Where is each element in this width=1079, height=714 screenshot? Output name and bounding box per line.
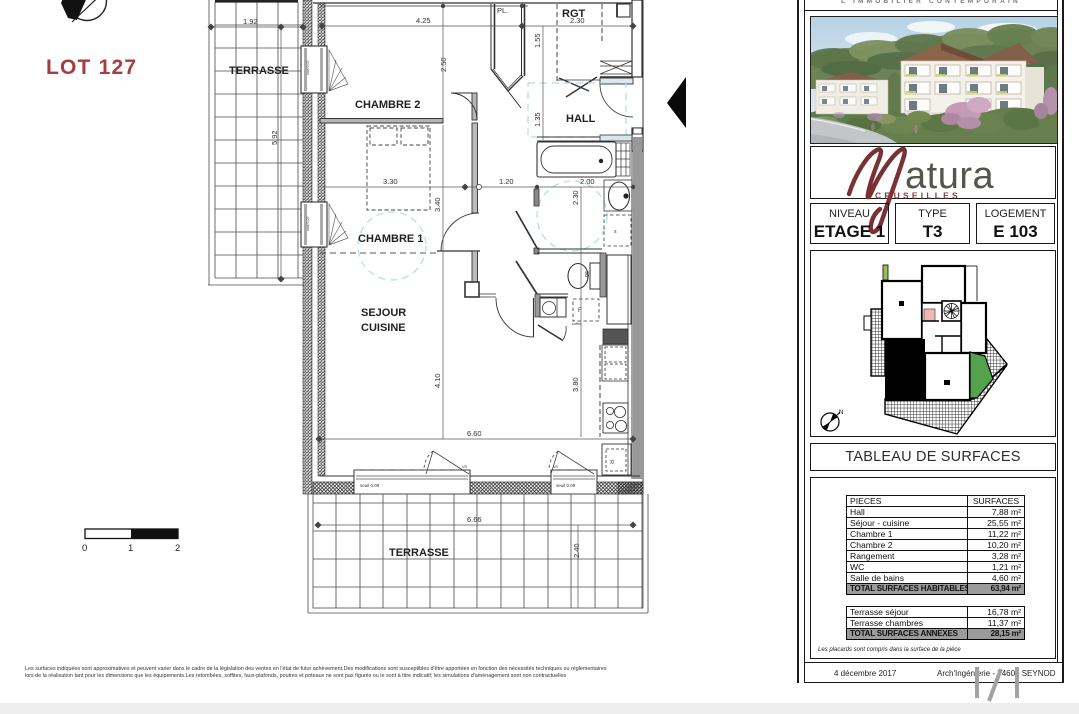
svg-text:1.20: 1.20 (499, 177, 514, 186)
svg-text:SEJOUR: SEJOUR (361, 307, 406, 319)
svg-text:4.25: 4.25 (416, 16, 431, 25)
svg-text:seuil 0.09: seuil 0.09 (556, 483, 576, 488)
svg-text:VR: VR (462, 465, 468, 469)
svg-text:CRUSEILLES: CRUSEILLES (875, 191, 961, 201)
svg-text:2.30: 2.30 (571, 190, 580, 205)
svg-text:1: 1 (128, 543, 133, 554)
svg-text:CHAMBRE 1: CHAMBRE 1 (358, 233, 423, 245)
svg-text:2.40: 2.40 (572, 543, 581, 558)
svg-text:2.50: 2.50 (439, 57, 448, 72)
svg-text:90: 90 (583, 271, 589, 277)
svg-text:3.30: 3.30 (383, 177, 398, 186)
svg-text:1.92: 1.92 (243, 17, 258, 26)
svg-text:2.00: 2.00 (580, 177, 595, 186)
svg-text:PL.: PL. (497, 6, 508, 15)
svg-text:N: N (839, 410, 843, 416)
svg-text:CHAMBRE 2: CHAMBRE 2 (355, 99, 420, 111)
svg-text:0: 0 (82, 543, 87, 554)
svg-text:HALL: HALL (566, 113, 596, 125)
svg-text:baie/0.09: baie/0.09 (306, 61, 310, 75)
svg-text:seuil 0.09: seuil 0.09 (360, 483, 380, 488)
svg-text:1.55: 1.55 (533, 33, 542, 48)
svg-text:coffre: coffre (572, 322, 581, 326)
svg-text:CUISINE: CUISINE (361, 322, 406, 334)
svg-text:2: 2 (175, 543, 180, 554)
svg-text:VR: VR (553, 465, 559, 469)
svg-text:TERRASSE: TERRASSE (229, 65, 289, 77)
svg-text:3.80: 3.80 (571, 377, 580, 392)
svg-text:baie/0.09: baie/0.09 (306, 217, 310, 231)
svg-text:TERRASSE: TERRASSE (389, 547, 449, 559)
svg-text:R: R (608, 460, 614, 464)
svg-text:5.92: 5.92 (270, 130, 279, 145)
svg-text:3.40: 3.40 (433, 197, 442, 212)
svg-text:1.35: 1.35 (533, 112, 542, 127)
svg-text:F: F (578, 308, 582, 314)
svg-text:6.60: 6.60 (467, 429, 482, 438)
svg-text:6.66: 6.66 (467, 515, 482, 524)
svg-text:s: s (614, 229, 617, 235)
svg-text:4.10: 4.10 (433, 373, 442, 388)
svg-text:RGT: RGT (562, 8, 586, 20)
